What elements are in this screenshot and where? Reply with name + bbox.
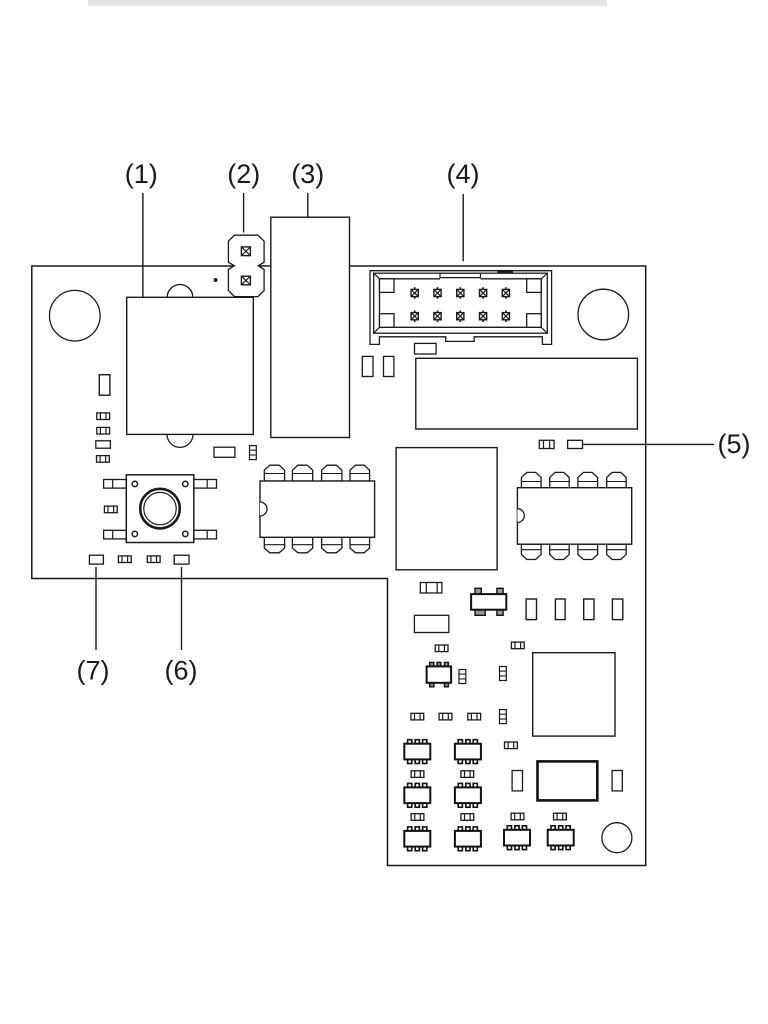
svg-text:(2): (2) (227, 159, 260, 189)
svg-text:(5): (5) (718, 429, 751, 459)
svg-text:(7): (7) (77, 656, 110, 686)
svg-text:(3): (3) (291, 159, 324, 189)
svg-text:(6): (6) (165, 656, 198, 686)
svg-text:(1): (1) (125, 159, 158, 189)
svg-text:(4): (4) (447, 159, 480, 189)
